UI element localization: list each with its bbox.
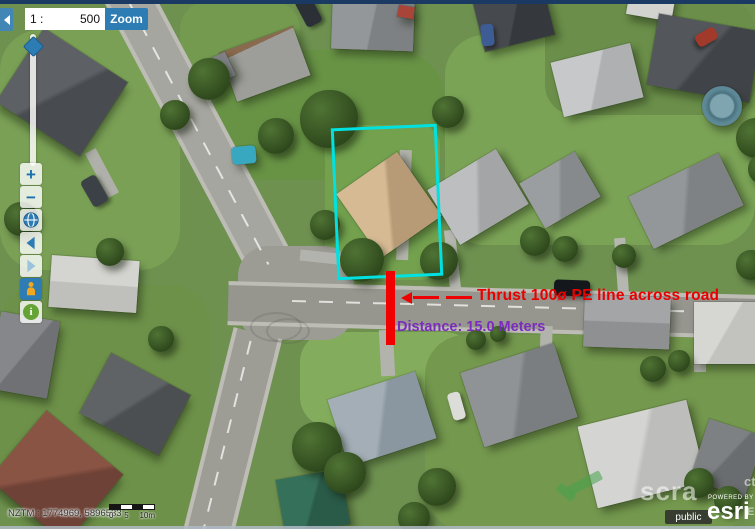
coordinate-readout: NZTM : 1774969, 5896533 bbox=[8, 508, 122, 519]
public-badge: public bbox=[665, 510, 712, 524]
collapse-panel-tab[interactable] bbox=[0, 8, 13, 31]
identify-info-button[interactable]: i bbox=[20, 301, 42, 323]
previous-extent-button[interactable] bbox=[20, 232, 42, 254]
tree bbox=[520, 226, 550, 256]
tree bbox=[552, 236, 578, 262]
parcel-highlight-rectangle bbox=[331, 124, 444, 280]
street-view-button[interactable] bbox=[20, 278, 42, 300]
car bbox=[480, 23, 495, 46]
zoom-out-button[interactable]: − bbox=[20, 186, 42, 208]
scale-prefix-label: 1 : bbox=[30, 12, 43, 26]
window-top-border bbox=[0, 0, 755, 4]
scalebar-label-10m: 10m bbox=[139, 511, 155, 520]
zoom-in-button[interactable]: + bbox=[20, 163, 42, 185]
tree bbox=[188, 58, 230, 100]
tree bbox=[398, 502, 430, 529]
tree bbox=[258, 118, 294, 154]
scalebar-segments bbox=[109, 504, 155, 510]
arrow-left-icon bbox=[22, 234, 40, 252]
tree bbox=[148, 326, 174, 352]
arrow-dashed-line bbox=[413, 296, 473, 299]
plus-icon: + bbox=[26, 166, 36, 183]
map-viewer-window: Thrust 100ø PE line across road Distance… bbox=[0, 0, 755, 529]
tree bbox=[324, 452, 366, 494]
tree bbox=[160, 100, 190, 130]
info-icon: i bbox=[23, 304, 39, 320]
tree bbox=[640, 356, 666, 382]
watermark-fragment: ct bbox=[744, 474, 755, 489]
scalebar-label-0: 0 bbox=[109, 511, 113, 520]
esri-logo: esri bbox=[707, 498, 750, 526]
tree bbox=[96, 238, 124, 266]
minus-icon: − bbox=[26, 189, 36, 206]
distance-annotation-label: Distance: 15.0 Meters bbox=[397, 319, 545, 335]
thrust-annotation-label: Thrust 100ø PE line across road bbox=[477, 287, 719, 305]
scale-input-box: 1 : bbox=[25, 8, 105, 30]
next-extent-button[interactable] bbox=[20, 255, 42, 277]
tree bbox=[736, 250, 755, 280]
tree bbox=[668, 350, 690, 372]
tree bbox=[612, 244, 636, 268]
watermark-text: scra bbox=[640, 476, 698, 507]
house-roof bbox=[231, 145, 256, 165]
road-skid-marks bbox=[266, 318, 310, 344]
arrow-right-icon bbox=[22, 257, 40, 275]
person-icon bbox=[22, 280, 40, 298]
zoom-button[interactable]: Zoom bbox=[105, 8, 148, 30]
globe-icon bbox=[22, 211, 40, 229]
house-roof bbox=[694, 302, 755, 364]
full-extent-button[interactable] bbox=[20, 209, 42, 231]
tree bbox=[432, 96, 464, 128]
left-triangle-icon bbox=[4, 15, 10, 25]
tree bbox=[418, 468, 456, 506]
scalebar-label-5: 5 bbox=[124, 511, 128, 520]
map-scalebar: 0 5 10m bbox=[109, 504, 155, 520]
house-roof bbox=[48, 255, 139, 313]
arrow-head-icon bbox=[401, 292, 412, 304]
thrust-line-marker bbox=[386, 271, 395, 345]
house-roof bbox=[397, 5, 415, 20]
house-roof bbox=[702, 86, 742, 126]
scale-input[interactable] bbox=[58, 12, 100, 26]
